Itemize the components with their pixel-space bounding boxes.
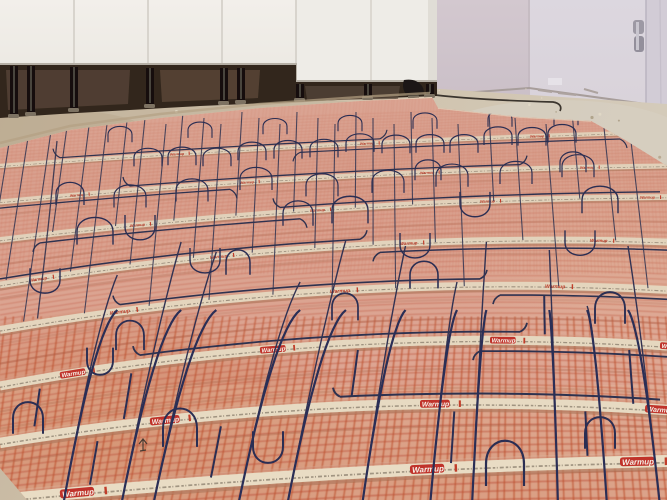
svg-text:Warmup: Warmup bbox=[622, 457, 654, 467]
svg-text:Warmup: Warmup bbox=[422, 401, 450, 408]
svg-text:Warmup: Warmup bbox=[580, 166, 595, 170]
svg-text:Warmup: Warmup bbox=[640, 196, 656, 200]
svg-text:Warmup: Warmup bbox=[590, 238, 608, 243]
svg-text:Warmup: Warmup bbox=[545, 284, 565, 290]
svg-text:Warmup: Warmup bbox=[420, 171, 435, 176]
svg-text:Warmup: Warmup bbox=[412, 464, 444, 474]
svg-text:Warmup: Warmup bbox=[530, 134, 545, 139]
svg-text:Warmup: Warmup bbox=[491, 338, 515, 344]
svg-text:Warmup: Warmup bbox=[400, 240, 418, 246]
